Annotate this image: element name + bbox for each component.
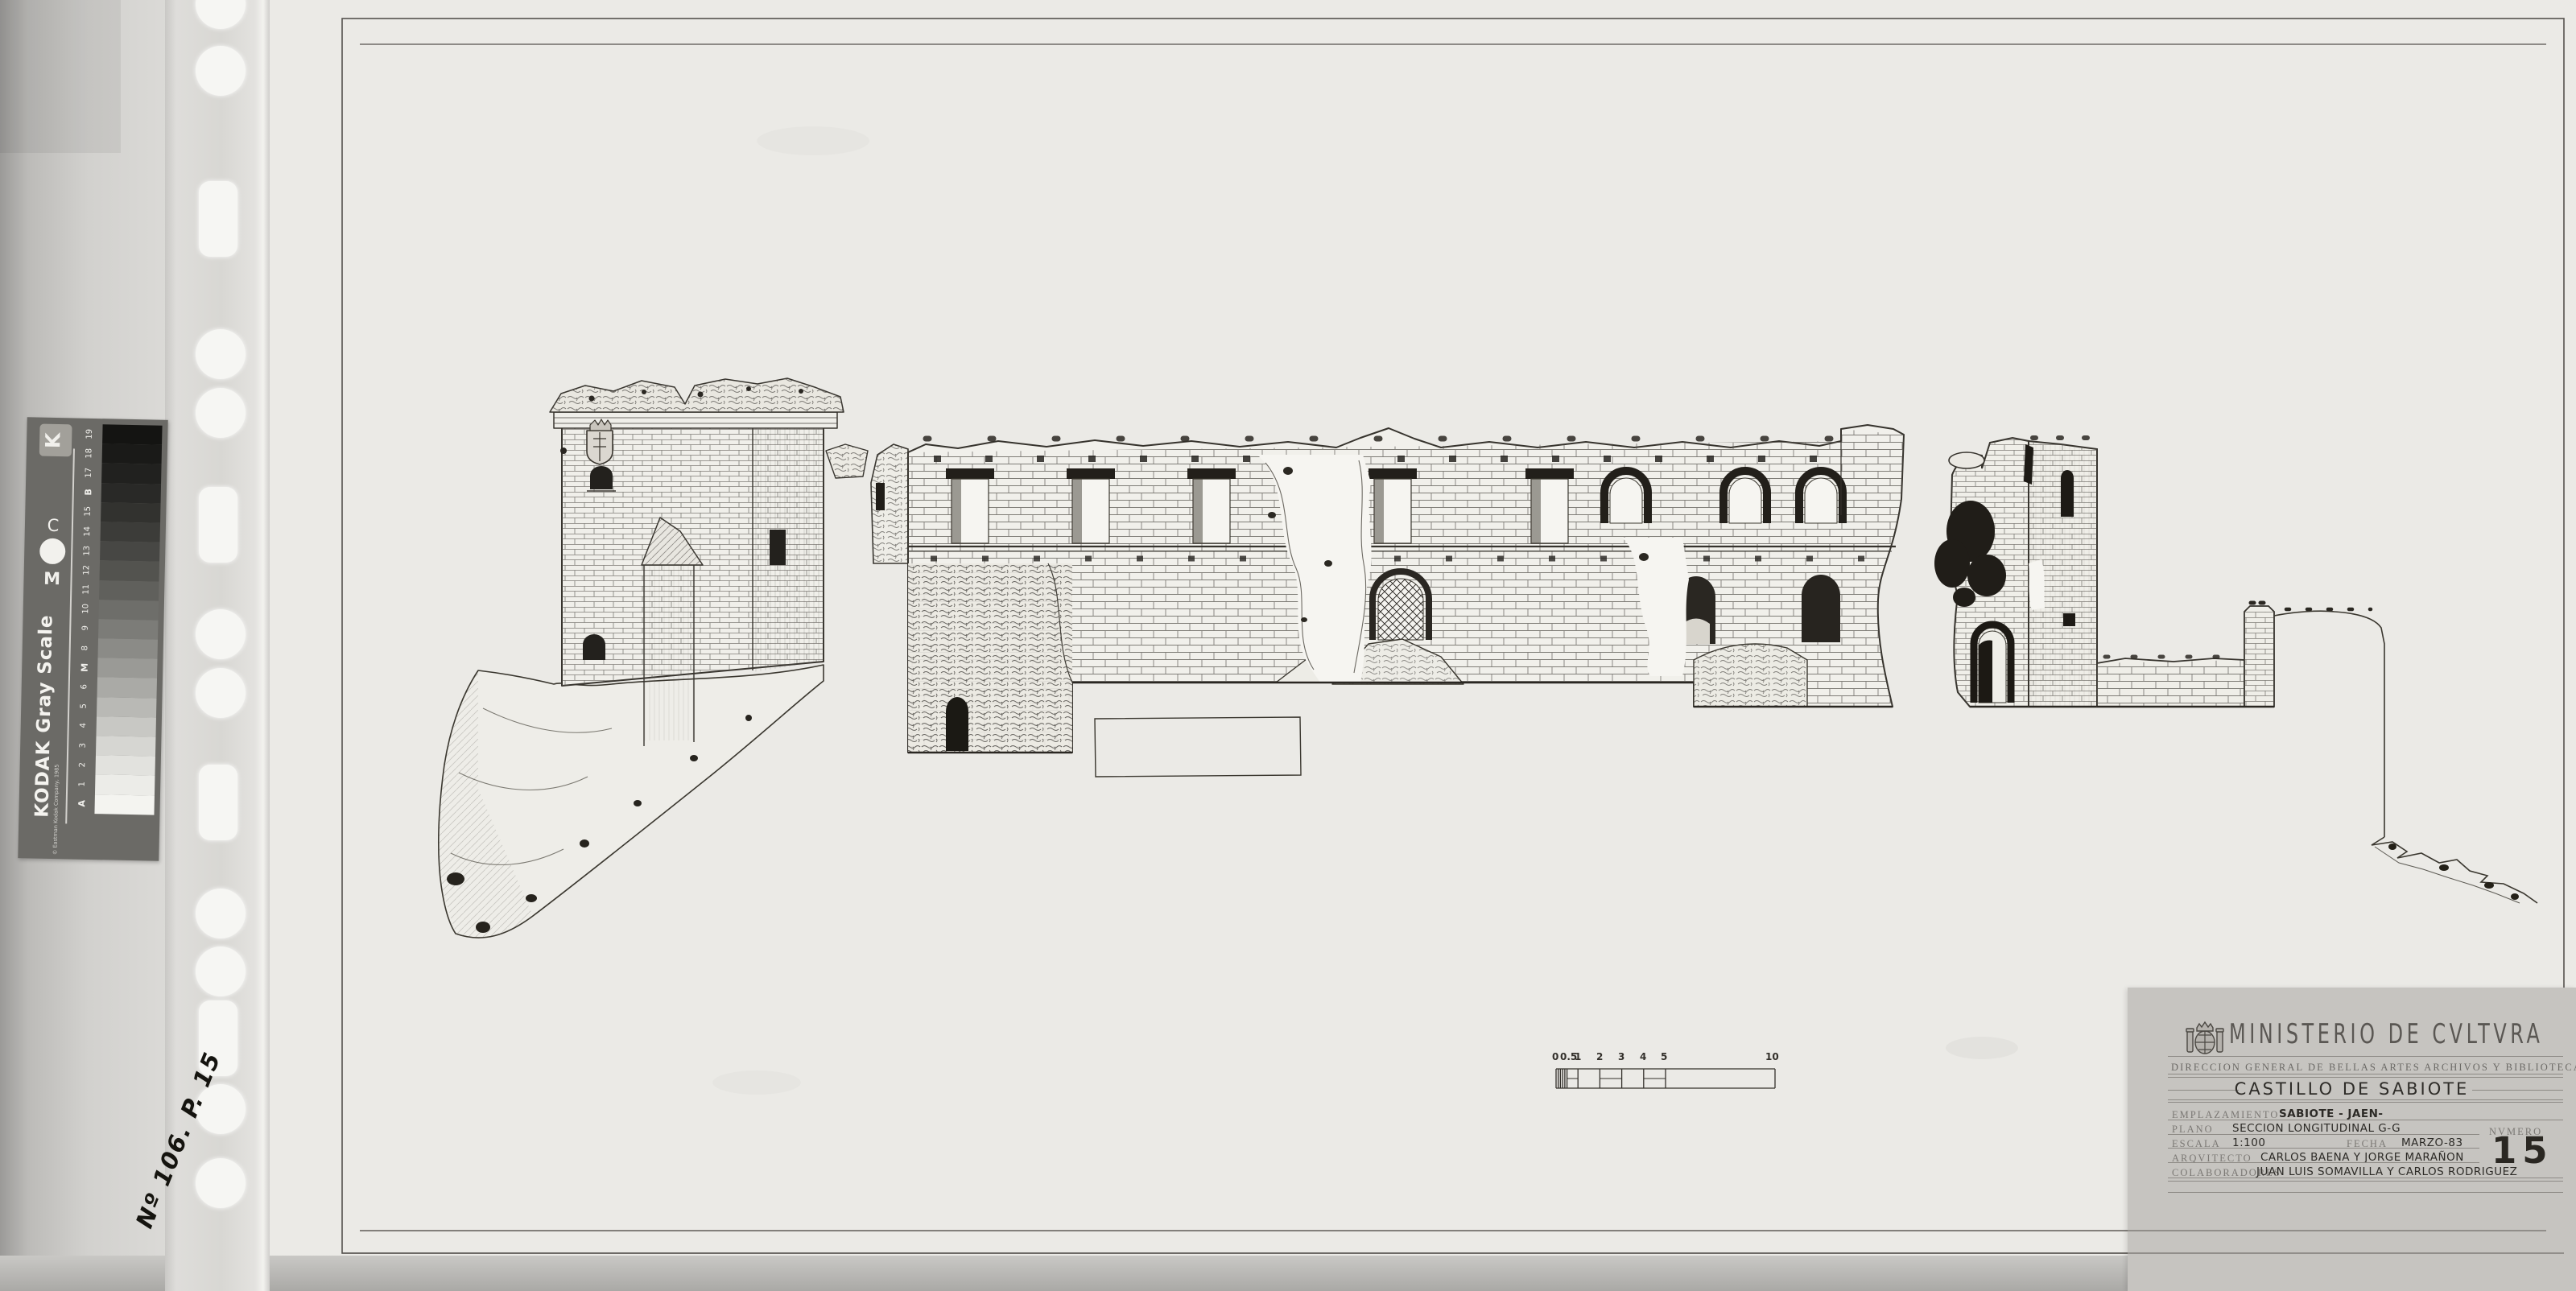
- scale-bar: [1556, 1069, 1775, 1088]
- spain-coat-of-arms: [2186, 1020, 2224, 1058]
- registration-letter-m: M: [38, 569, 65, 589]
- punch-hole: [196, 668, 246, 718]
- cistern-outline: [1095, 717, 1301, 777]
- registration-letter-c: C: [39, 516, 67, 536]
- punch-slot: [199, 181, 237, 257]
- scale-tick-3: 3: [1618, 1051, 1624, 1062]
- scale-tick-4: 4: [1640, 1051, 1646, 1062]
- punch-hole: [196, 46, 246, 96]
- left-tower: [439, 378, 868, 938]
- kodak-logo: K: [39, 424, 72, 457]
- punch-hole: [196, 609, 246, 659]
- sheet-number-stamp: 15: [2491, 1129, 2553, 1172]
- middle-turret: [1934, 438, 2029, 707]
- punch-slot: [199, 487, 237, 563]
- emplazamiento-value: SABIOTE - JAEN-: [2279, 1107, 2384, 1120]
- punch-hole: [196, 889, 246, 938]
- title-block: MINISTERIO DE CVLTVRA DIRECCION GENERAL …: [2128, 988, 2576, 1291]
- colaboradores-value: JUAN LUIS SOMAVILLA Y CARLOS RODRIGUEZ: [2256, 1165, 2517, 1178]
- project-title: CASTILLO DE SABIOTE: [2128, 1079, 2576, 1099]
- scale-tick-0: 0: [1552, 1051, 1558, 1062]
- punch-hole: [196, 947, 246, 996]
- archival-scan: 0 0.5 1 2 3 4 5 10 K C M KODAK Gray Scal…: [0, 0, 2576, 1291]
- gray-step: A: [68, 794, 154, 815]
- scale-tick-1: 1: [1575, 1051, 1581, 1062]
- emplazamiento-label: EMPLAZAMIENTO: [2172, 1109, 2279, 1120]
- punch-hole: [196, 1158, 246, 1208]
- punch-hole: [196, 329, 246, 379]
- registration-dot: [39, 538, 66, 565]
- plano-label: PLANO: [2172, 1124, 2214, 1135]
- right-tower: [2024, 438, 2097, 707]
- plano-value: SECCION LONGITUDINAL G-G: [2232, 1122, 2401, 1135]
- low-wall: [2097, 603, 2274, 707]
- punch-hole: [196, 0, 246, 29]
- lattice-doorway: [1373, 571, 1429, 640]
- punch-slot: [199, 765, 237, 840]
- outline-wall-and-rocks: [2274, 609, 2537, 903]
- kodak-gray-scale-card: K C M KODAK Gray Scale © Eastman Kodak C…: [18, 417, 167, 861]
- department-line: DIRECCION GENERAL DE BELLAS ARTES ARCHIV…: [2171, 1062, 2576, 1074]
- wall-stub: [871, 444, 908, 563]
- scale-tick-10: 10: [1765, 1051, 1779, 1062]
- gray-scale-steps: 19 18 17 B 15 14 13 12 11 10 9 8 M 6 5 4…: [68, 424, 162, 815]
- punch-hole: [196, 388, 246, 438]
- scale-tick-5: 5: [1661, 1051, 1667, 1062]
- curtain-wall: [908, 425, 1904, 753]
- ministry-title: MINISTERIO DE CVLTVRA: [2229, 1018, 2543, 1050]
- gray-scale-copyright: © Eastman Kodak Company, 1985: [52, 764, 60, 855]
- scale-tick-2: 2: [1596, 1051, 1603, 1062]
- arched-windows: [1604, 471, 1843, 523]
